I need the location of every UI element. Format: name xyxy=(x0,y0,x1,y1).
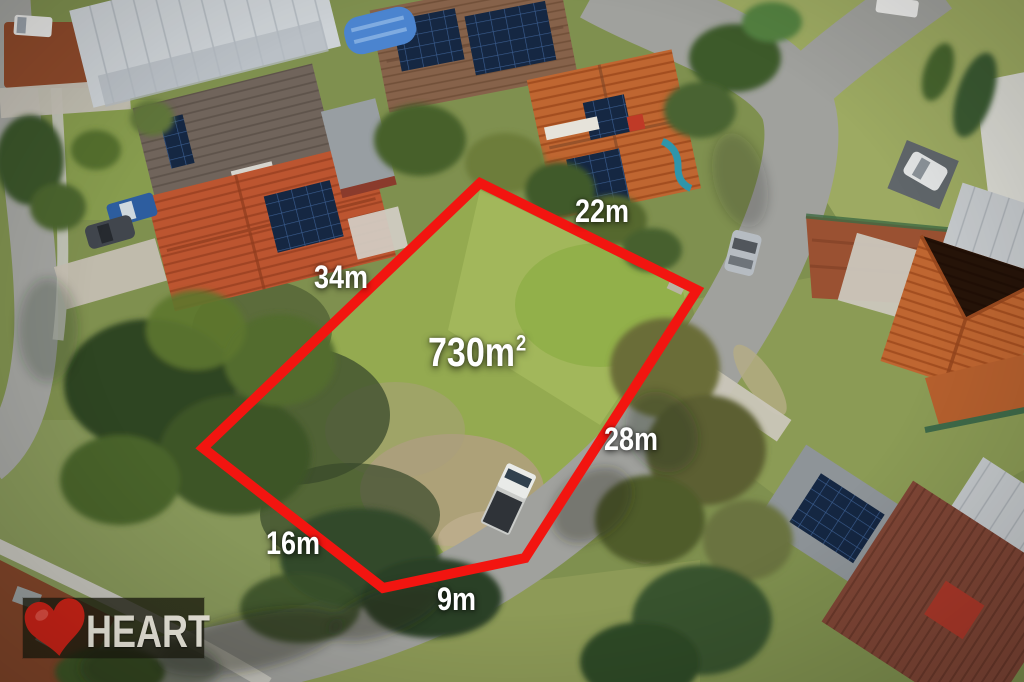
dimension-label-28m: 28m xyxy=(604,424,664,454)
dimension-label-34m: 34m xyxy=(314,262,374,292)
heart-icon xyxy=(22,595,91,660)
brand-name: HEART xyxy=(86,609,210,654)
brand-watermark: HEART xyxy=(23,598,204,658)
white-truck-top-left xyxy=(13,15,52,38)
dimension-label-22m: 22m xyxy=(575,196,635,226)
dimension-label-16m: 16m xyxy=(266,528,326,558)
area-label: 730m2 xyxy=(428,332,535,369)
area-superscript: 2 xyxy=(516,332,526,356)
aerial-property-photo: 22m 34m 28m 16m 9m 730m2 HEART xyxy=(0,0,1024,682)
dimension-label-9m: 9m xyxy=(437,584,480,614)
